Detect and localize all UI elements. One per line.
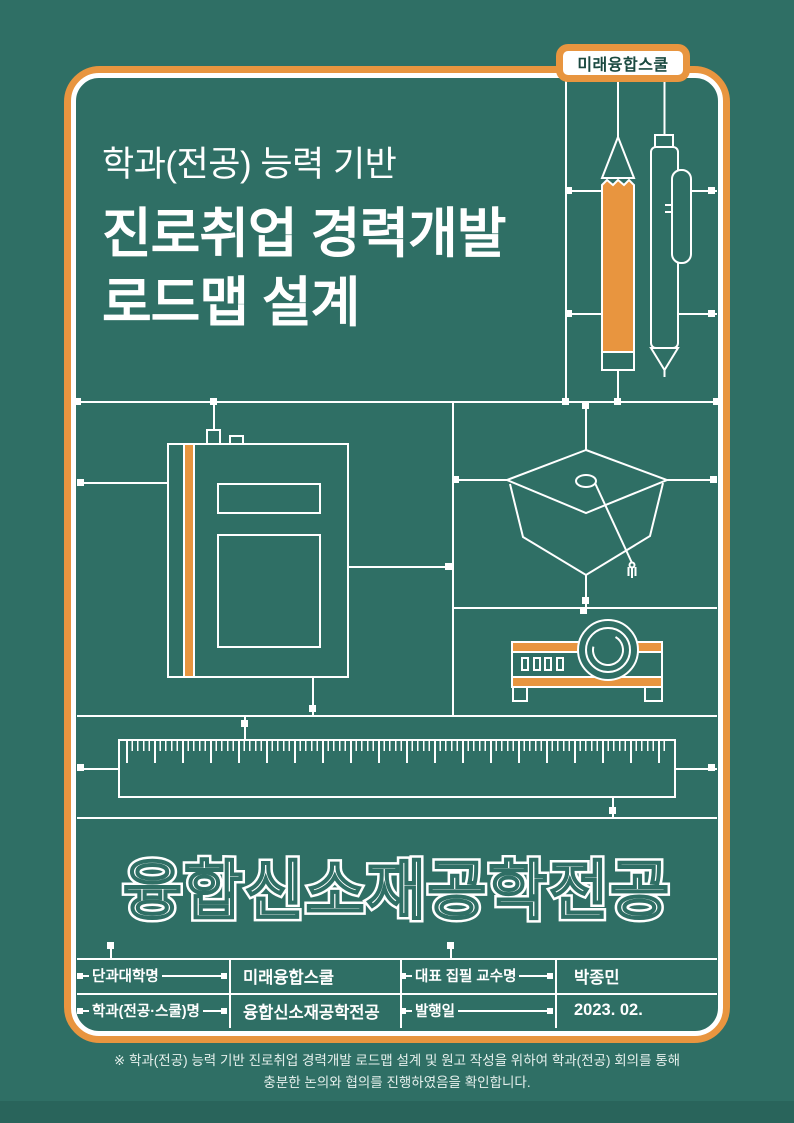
junction-nub — [107, 942, 114, 949]
table-column-divider — [555, 958, 557, 1028]
school-badge: 미래융합스쿨 — [556, 44, 690, 82]
graduation-cap-icon — [507, 450, 667, 578]
confirmation-note: ※ 학과(전공) 능력 기반 진로취업 경력개발 로드맵 설계 및 원고 작성을… — [0, 1050, 794, 1093]
junction-nub — [77, 764, 84, 771]
confirmation-note-line2: 충분한 논의와 협의를 진행하였음을 확인합니다. — [0, 1072, 794, 1094]
ruler-top-connector — [244, 715, 246, 739]
confirmation-note-line1: ※ 학과(전공) 능력 기반 진로취업 경력개발 로드맵 설계 및 원고 작성을… — [0, 1050, 794, 1072]
poster-page: { "badge": { "label": "미래융합스쿨" }, "heade… — [0, 0, 794, 1123]
table-value-department: 융합신소재공학전공 — [243, 993, 380, 1028]
table-value-college: 미래융합스쿨 — [243, 958, 334, 993]
pen-icon — [651, 135, 691, 377]
junction-nub — [447, 942, 454, 949]
school-badge-label: 미래융합스쿨 — [577, 51, 668, 75]
poster-title-line2: 로드맵 설계 — [102, 269, 505, 338]
ruler-icon — [118, 739, 676, 798]
pencil-icon — [602, 137, 634, 401]
junction-nub — [241, 720, 248, 727]
table-value-publish-date: 2023. 02. — [574, 993, 643, 1028]
junction-nub — [708, 764, 715, 771]
junction-nub — [609, 807, 616, 814]
graduation-cap-section — [452, 401, 717, 607]
pencil-pen-panel — [565, 79, 717, 401]
poster-title: 진로취업 경력개발 로드맵 설계 — [102, 200, 505, 338]
table-label-college: 단과대학명 — [77, 958, 227, 993]
notebook-icon — [168, 430, 348, 677]
table-value-professor: 박종민 — [574, 958, 620, 993]
table-label-professor: 대표 집필 교수명 — [400, 958, 553, 993]
bottom-color-band — [0, 1101, 794, 1123]
poster-subtitle: 학과(전공) 능력 기반 — [102, 136, 396, 187]
divider-horizontal-below-ruler — [77, 817, 717, 819]
major-name-display: 융합신소재공학전공 융합신소재공학전공 — [77, 834, 717, 938]
table-label-publish-date: 발행일 — [400, 993, 553, 1028]
table-label-department: 학과(전공·스쿨)명 — [77, 993, 227, 1028]
projector-icon — [512, 620, 662, 701]
divider-horizontal-above-ruler — [77, 715, 717, 717]
notebook-section — [77, 401, 452, 715]
poster-title-line1: 진로취업 경력개발 — [102, 200, 505, 269]
projector-section — [452, 607, 717, 715]
ruler-small-ticks — [126, 741, 668, 751]
major-name-inline-stroke: 융합신소재공학전공 — [77, 840, 717, 932]
poster-frame: 학과(전공) 능력 기반 진로취업 경력개발 로드맵 설계 — [64, 66, 730, 1043]
table-column-divider — [229, 958, 231, 1028]
